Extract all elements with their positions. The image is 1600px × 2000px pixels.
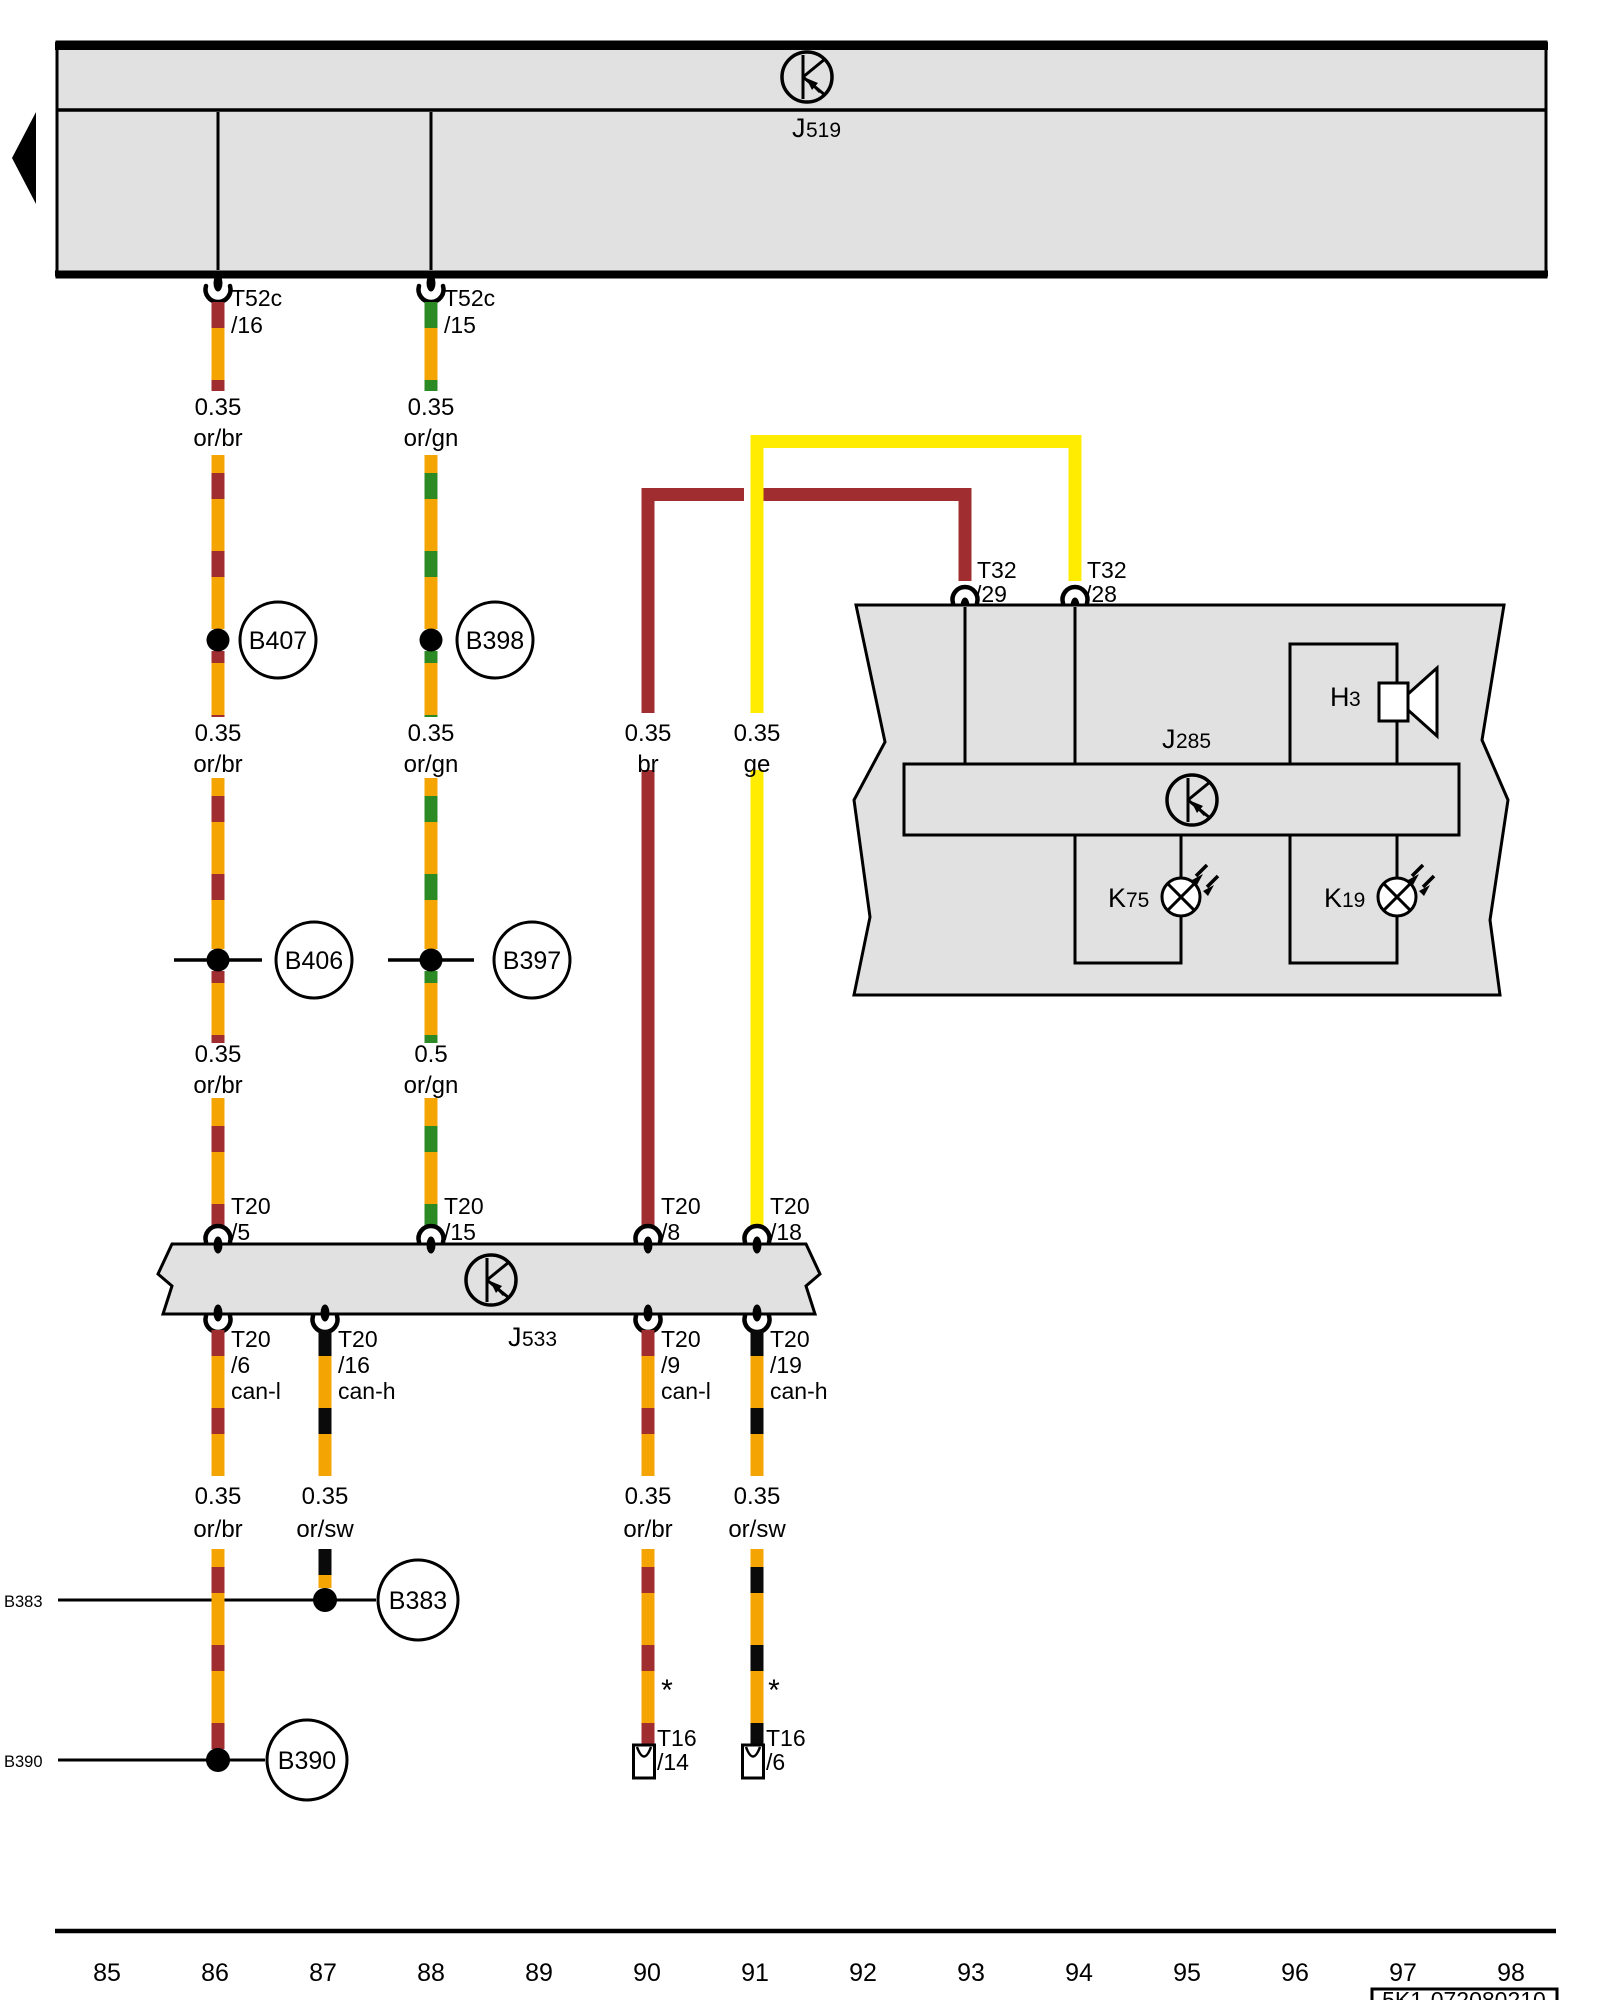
junction-label: B398 [466, 627, 524, 655]
grid-number: 87 [309, 1959, 337, 1987]
wire-gauge: 0.35 [625, 720, 672, 747]
k75-number: 75 [1126, 889, 1149, 912]
k75-label: K [1108, 883, 1126, 913]
wire-color: or/br [193, 1072, 242, 1099]
speaker-icon [1379, 683, 1408, 721]
connector-bus: can-h [338, 1378, 396, 1404]
connector-pin: /18 [770, 1219, 802, 1245]
wire-color: or/br [193, 425, 242, 452]
j285-number: 285 [1176, 730, 1211, 753]
wiring-diagram-canvas: J 519 T52c /16 T52c /15 [0, 0, 1600, 2000]
connector-name: T32 [1087, 557, 1127, 583]
connector-pin: /19 [770, 1352, 802, 1378]
connector-name: T20 [661, 1326, 701, 1352]
wire-gauge: 0.35 [408, 720, 455, 747]
connector-pin: /5 [231, 1219, 250, 1245]
part-number-box: 5K1-072080210 [1372, 1987, 1557, 2000]
connector-name: T16 [766, 1725, 806, 1751]
wire-color: or/gn [404, 1072, 459, 1099]
grid-number: 85 [93, 1959, 121, 1987]
connector-pin: /9 [661, 1352, 680, 1378]
junction-b406: B406 [207, 922, 353, 998]
connector-name: T20 [770, 1326, 810, 1352]
j533-number: 533 [522, 1328, 557, 1351]
connector-pin: /8 [661, 1219, 680, 1245]
junction-b397: B397 [420, 922, 571, 998]
wire-gauge: 0.35 [734, 720, 781, 747]
connector-pin: /14 [657, 1749, 689, 1775]
connector-bus: can-l [231, 1378, 281, 1404]
j519-box: J 519 [55, 42, 1548, 277]
connector-bus: can-h [770, 1378, 828, 1404]
grid-number: 90 [633, 1959, 661, 1987]
wire-gauge: 0.35 [408, 394, 455, 421]
wire-color: or/br [193, 751, 242, 778]
connector-name: T20 [770, 1193, 810, 1219]
footnote-asterisk: * [768, 1674, 780, 1707]
wire-gauge: 0.35 [625, 1483, 672, 1510]
junction-label: B407 [249, 627, 307, 655]
part-number: 5K1-072080210 [1382, 1987, 1546, 2000]
junction-label: B397 [503, 947, 561, 975]
k19-number: 19 [1342, 889, 1365, 912]
grid-number: 88 [417, 1959, 445, 1987]
grid-scale: 85 86 87 88 89 90 91 92 93 94 95 96 97 9… [55, 1931, 1556, 1987]
j519-number: 519 [806, 119, 841, 142]
wire-color: or/sw [728, 1516, 786, 1543]
junction-b383: B383 [313, 1560, 458, 1640]
grid-number: 92 [849, 1959, 877, 1987]
junction-b390: B390 [206, 1720, 347, 1800]
connector-name: T32 [977, 557, 1017, 583]
connector-pin: /6 [231, 1352, 250, 1378]
connector-pin: /28 [1085, 581, 1117, 607]
h3-number: 3 [1349, 688, 1361, 711]
wire-gauge: 0.35 [734, 1483, 781, 1510]
connector-name: T20 [444, 1193, 484, 1219]
connector-name: T20 [231, 1326, 271, 1352]
footnote-asterisk: * [661, 1674, 673, 1707]
previous-current-flow-arrow-icon [12, 112, 36, 204]
wire-color: or/sw [296, 1516, 354, 1543]
wire-gauge: 0.35 [302, 1483, 349, 1510]
grid-number: 96 [1281, 1959, 1309, 1987]
wire-gauge: 0.35 [195, 720, 242, 747]
k19-label: K [1324, 883, 1342, 913]
grid-number: 91 [741, 1959, 769, 1987]
edge-label-b390: B390 [4, 1753, 43, 1771]
j533-label: J [508, 1322, 522, 1352]
grid-number: 97 [1389, 1959, 1417, 1987]
wire-color: or/br [623, 1516, 672, 1543]
connector-pin: /29 [975, 581, 1007, 607]
junction-label: B390 [278, 1747, 336, 1775]
wire-gauge: 0.35 [195, 394, 242, 421]
wire-color: ge [744, 751, 771, 778]
connector-name: T20 [231, 1193, 271, 1219]
grid-number: 86 [201, 1959, 229, 1987]
grid-number: 98 [1497, 1959, 1525, 1987]
wire-color: or/gn [404, 425, 459, 452]
wire-color: or/br [193, 1516, 242, 1543]
connector-pin: /15 [444, 312, 476, 338]
socket-icon [419, 275, 444, 303]
connector-name: T20 [338, 1326, 378, 1352]
wire-gauge: 0.5 [414, 1041, 447, 1068]
h3-label: H [1330, 682, 1350, 712]
junction-label: B406 [285, 947, 343, 975]
junction-label: B383 [389, 1587, 447, 1615]
wire-gauge: 0.35 [195, 1041, 242, 1068]
connector-pin: /16 [231, 312, 263, 338]
connector-name: T52c [444, 285, 495, 311]
grid-number: 94 [1065, 1959, 1093, 1987]
grid-number: 89 [525, 1959, 553, 1987]
connector-name: T52c [231, 285, 282, 311]
j285-label: J [1162, 724, 1176, 754]
connector-name: T20 [661, 1193, 701, 1219]
j285-panel: H 3 J 285 K 75 K 19 [854, 605, 1508, 995]
socket-icon [206, 275, 231, 303]
grid-number: 95 [1173, 1959, 1201, 1987]
j519-label: J [792, 113, 806, 143]
wire-color: or/gn [404, 751, 459, 778]
wire-gauge: 0.35 [195, 1483, 242, 1510]
grid-number: 93 [957, 1959, 985, 1987]
connector-bus: can-l [661, 1378, 711, 1404]
connector-name: T16 [657, 1725, 697, 1751]
edge-label-b383: B383 [4, 1593, 43, 1611]
connector-pin: /6 [766, 1749, 785, 1775]
wire-color: br [637, 751, 658, 778]
connector-pin: /15 [444, 1219, 476, 1245]
connector-pin: /16 [338, 1352, 370, 1378]
